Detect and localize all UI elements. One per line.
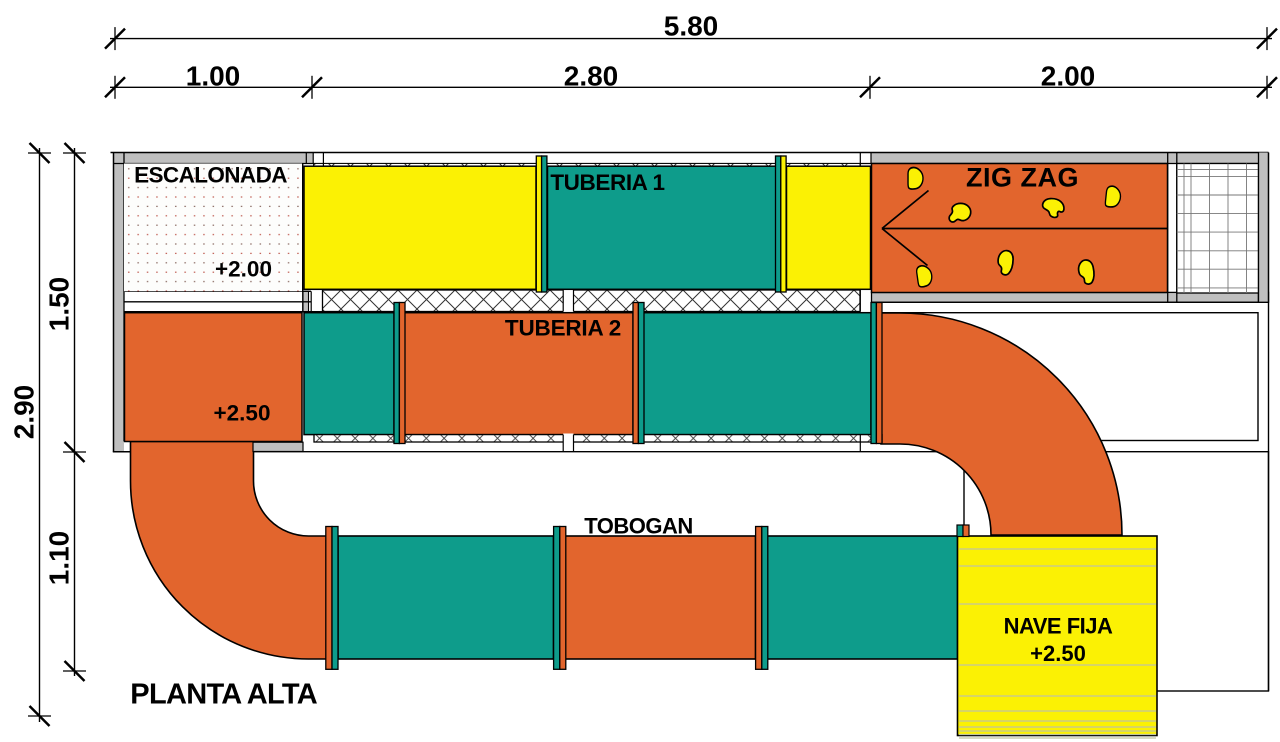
svg-text:+2.00: +2.00 [215, 256, 272, 281]
svg-text:1.00: 1.00 [186, 61, 241, 92]
svg-text:2.00: 2.00 [1041, 61, 1096, 92]
svg-text:5.80: 5.80 [664, 10, 719, 41]
svg-text:2.80: 2.80 [564, 61, 619, 92]
svg-text:TOBOGAN: TOBOGAN [584, 513, 693, 538]
svg-text:TUBERIA 2: TUBERIA 2 [505, 316, 621, 341]
svg-text:+2.50: +2.50 [214, 401, 271, 426]
svg-text:2.90: 2.90 [9, 385, 40, 440]
svg-text:NAVE FIJA: NAVE FIJA [1004, 614, 1113, 639]
svg-text:TUBERIA 1: TUBERIA 1 [550, 170, 664, 195]
svg-text:1.50: 1.50 [44, 277, 75, 332]
svg-text:ZIG ZAG: ZIG ZAG [966, 163, 1079, 193]
svg-text:PLANTA ALTA: PLANTA ALTA [130, 679, 317, 711]
svg-text:1.10: 1.10 [44, 531, 75, 586]
svg-text:ESCALONADA: ESCALONADA [134, 163, 287, 188]
svg-text:+2.50: +2.50 [1030, 641, 1086, 666]
